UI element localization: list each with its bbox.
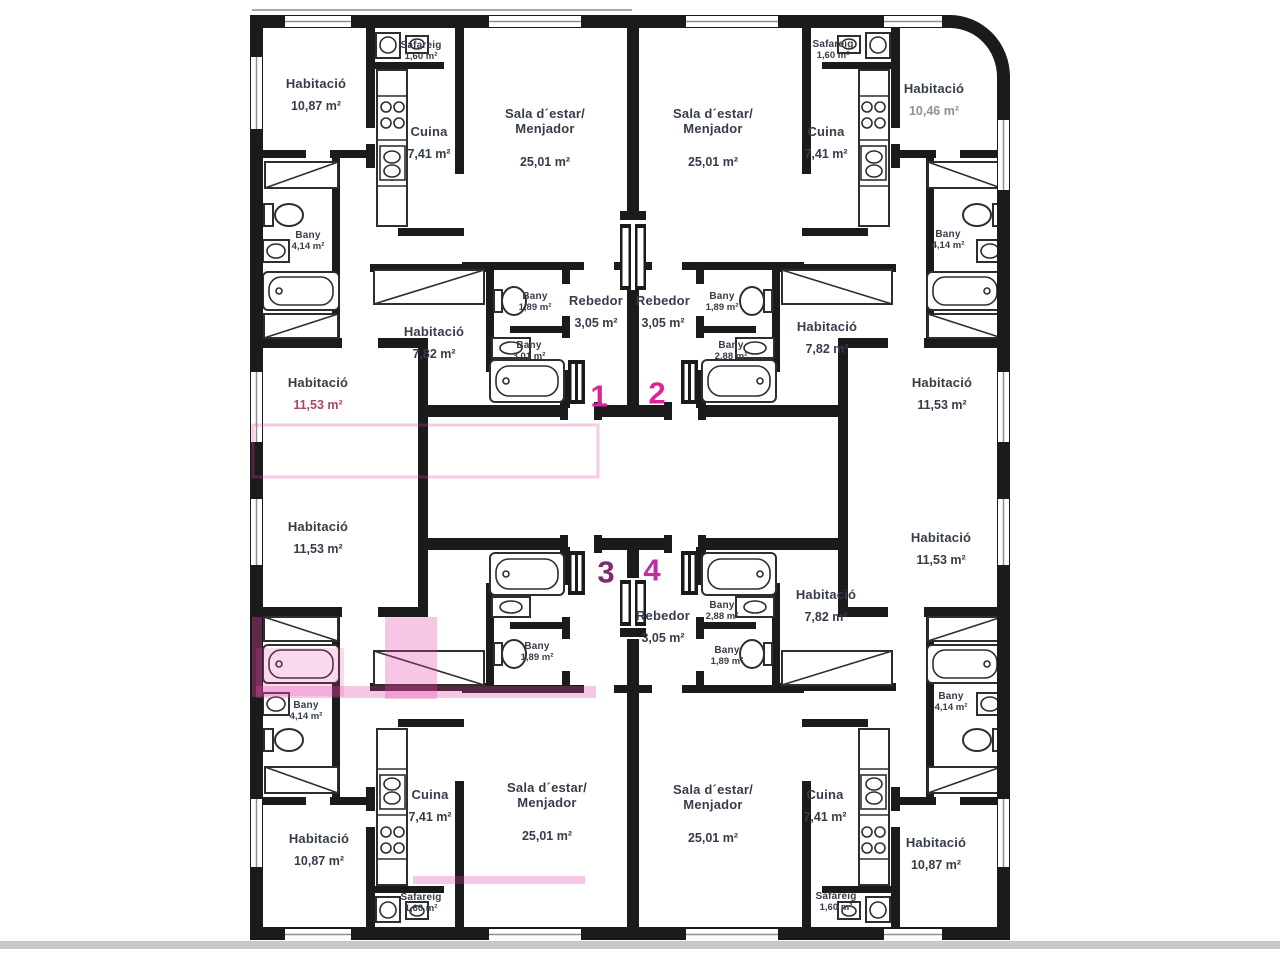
unit4-livingroom-label: Sala d´estar/Menjador25,01 m² (673, 783, 753, 845)
unit3-bedroom-1087-label: Habitació10,87 m² (289, 832, 349, 868)
central-wall (620, 15, 646, 939)
unit2-bathroom-189-label: Bany1,89 m² (706, 291, 739, 313)
unit2-bedroom-1046-label: Habitació10,46 m² (904, 82, 964, 118)
unit-number-2: 2 (648, 378, 665, 409)
unit4-kitchen-label: Cuina7,41 m² (803, 788, 846, 824)
unit2-bedroom-782-label: Habitació7,82 m² (797, 320, 857, 356)
unit3-bathroom-414-label: Bany4,14 m² (290, 700, 323, 722)
unit1-kitchen-label: Cuina7,41 m² (407, 125, 450, 161)
unit2-laundry-label: Safareig1,60 m² (812, 39, 853, 61)
unit1-bathroom-189-label: Bany1,89 m² (519, 291, 552, 313)
unit4-bedroom-1087-label: Habitació10,87 m² (906, 836, 966, 872)
unit4-hall-label: Rebedor3,05 m² (636, 609, 690, 645)
unit3-bedroom-1153-label: Habitació11,53 m² (288, 520, 348, 556)
unit2-bedroom-1153-label: Habitació11,53 m² (912, 376, 972, 412)
unit3-livingroom-label: Sala d´estar/Menjador25,01 m² (507, 781, 587, 843)
unit1-bedroom-782-label: Habitació7,82 m² (404, 325, 464, 361)
unit2-bathroom-288-label: Bany2,88 m² (715, 340, 748, 362)
floor-plan: Habitació10,87 m² Safareig1,60 m² Cuina7… (0, 0, 1280, 960)
unit1-bathroom-414-label: Bany4,14 m² (292, 230, 325, 252)
unit2-bathroom-414-label: Bany4,14 m² (932, 229, 965, 251)
unit4-laundry-label: Safareig1,60 m² (815, 891, 856, 913)
unit-number-3: 3 (597, 557, 614, 588)
unit2-hall-label: Rebedor3,05 m² (636, 294, 690, 330)
unit3-kitchen-label: Cuina7,41 m² (408, 788, 451, 824)
unit3-laundry-label: Safareig1,60 m² (400, 892, 441, 914)
unit1-livingroom-label: Sala d´estar/Menjador25,01 m² (505, 107, 585, 169)
unit1-bedroom-1153-label: Habitació11,53 m² (288, 376, 348, 412)
unit-number-4: 4 (643, 555, 660, 586)
unit3-bathroom-189-label: Bany1,89 m² (521, 641, 554, 663)
unit4-bathroom-288-label: Bany2,88 m² (706, 600, 739, 622)
unit1-laundry-label: Safareig1,60 m² (400, 40, 441, 62)
unit1-bathroom-301-label: Bany3,01 m² (513, 340, 546, 362)
unit4-bathroom-189-label: Bany1,89 m² (711, 645, 744, 667)
unit1-bedroom-1087-label: Habitació10,87 m² (286, 77, 346, 113)
unit4-bathroom-414-label: Bany4,14 m² (935, 691, 968, 713)
unit2-livingroom-label: Sala d´estar/Menjador25,01 m² (673, 107, 753, 169)
floor-plan-walls (0, 0, 1280, 960)
floor-plan-drawing: Habitació10,87 m² Safareig1,60 m² Cuina7… (0, 0, 1280, 960)
unit1-hall-label: Rebedor3,05 m² (569, 294, 623, 330)
unit2-kitchen-label: Cuina7,41 m² (804, 125, 847, 161)
unit-number-1: 1 (590, 381, 607, 412)
scan-artifact-band (0, 941, 1280, 949)
unit4-bedroom-782-label: Habitació7,82 m² (796, 588, 856, 624)
unit4-bedroom-1153-label: Habitació11,53 m² (911, 531, 971, 567)
